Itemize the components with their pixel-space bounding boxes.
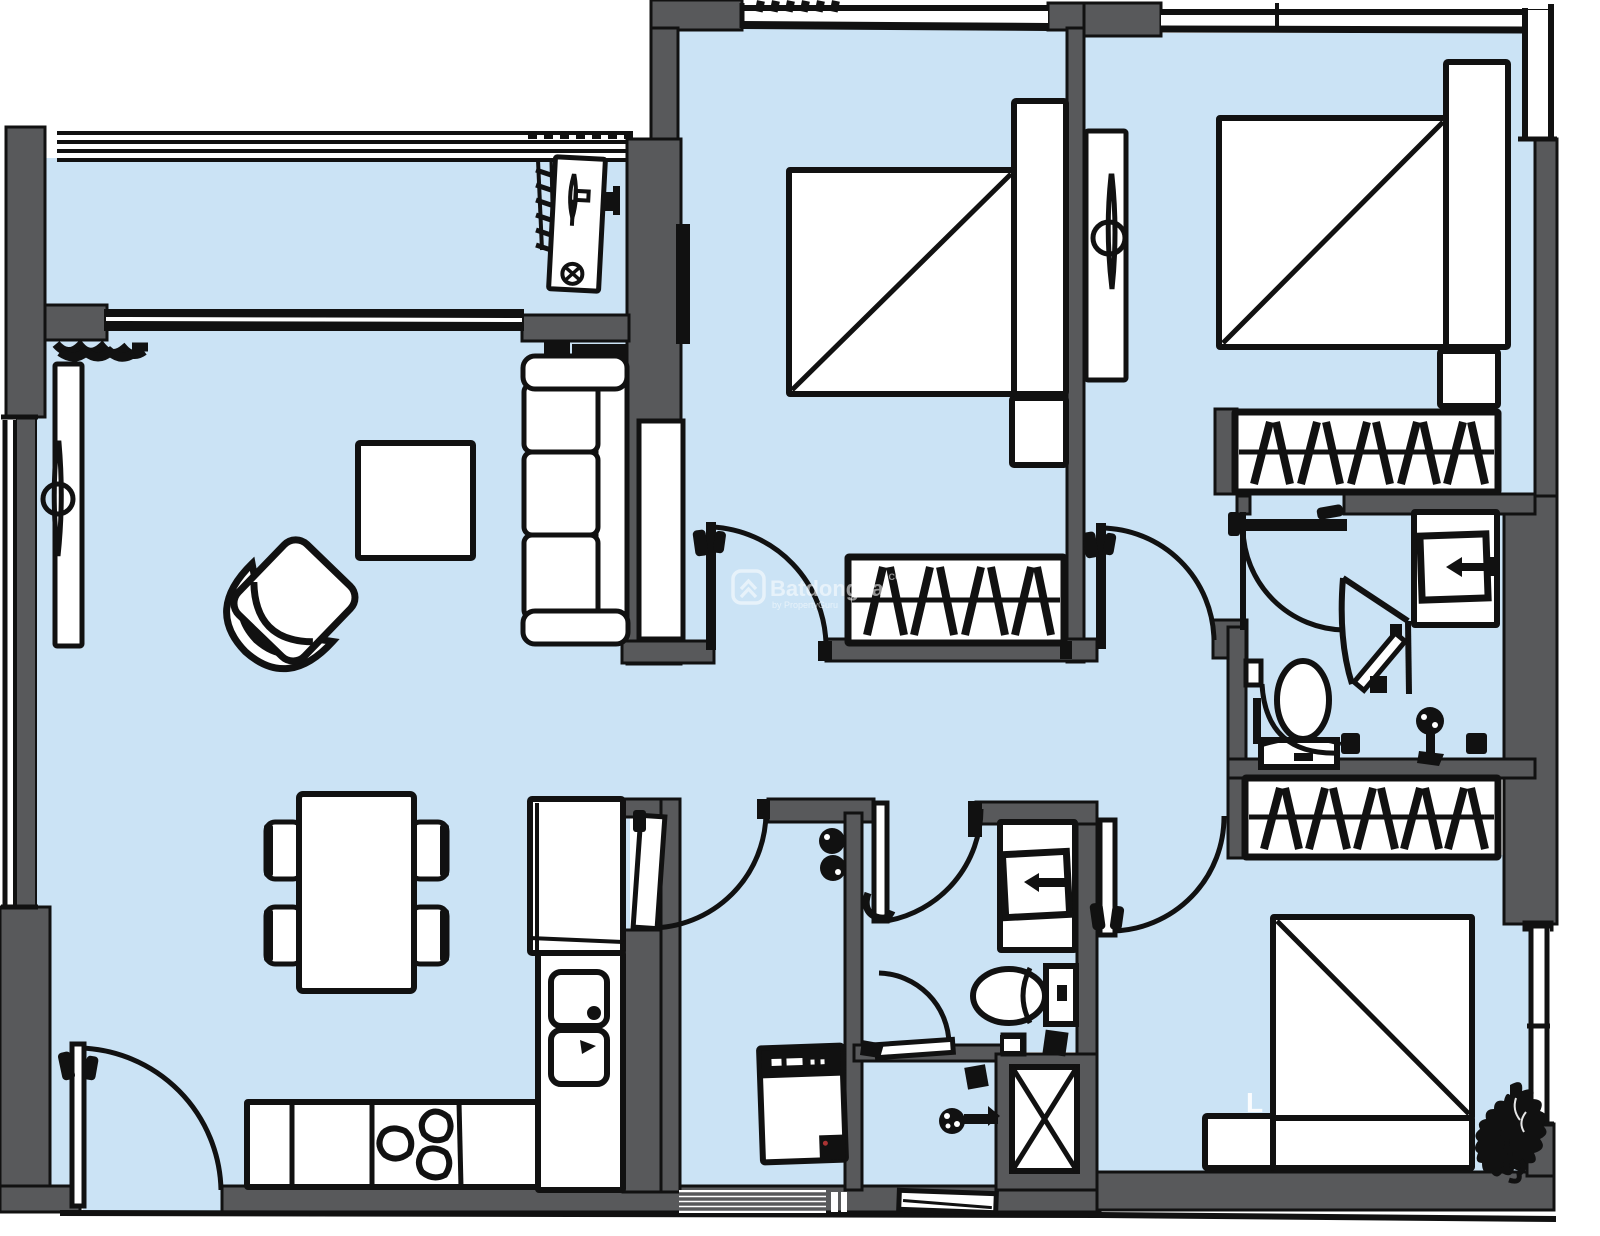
svg-text:Batdongsa: Batdongsa <box>770 576 884 601</box>
svg-text:by PropertyGuru: by PropertyGuru <box>772 600 838 610</box>
svg-text:L: L <box>1246 1087 1263 1118</box>
svg-text:.COM: .COM <box>886 572 910 582</box>
